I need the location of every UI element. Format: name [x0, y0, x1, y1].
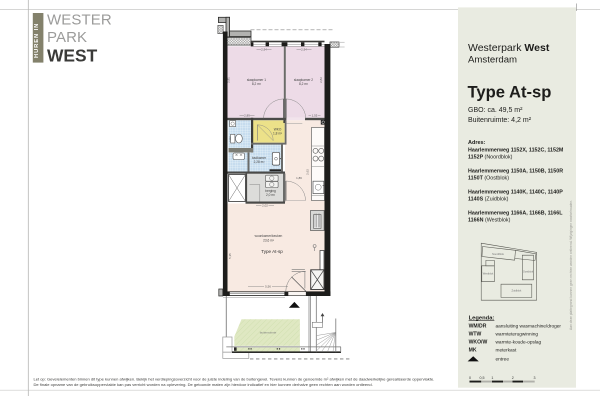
svg-text:buitenruimte: buitenruimte — [260, 331, 277, 335]
svg-text:1150T (Oostblok): 1150T (Oostblok) — [468, 176, 509, 182]
svg-text:PARK: PARK — [47, 29, 87, 46]
svg-text:0,5: 0,5 — [480, 376, 485, 380]
svg-text:2,0 m²: 2,0 m² — [266, 193, 275, 197]
svg-text:2,94: 2,94 — [301, 47, 307, 51]
svg-text:Haarlemmerweg 1152X, 1152C, 11: Haarlemmerweg 1152X, 1152C, 1152M — [468, 148, 564, 154]
svg-text:Aan deze plattegrond kunnen ge: Aan deze plattegrond kunnen geen rechten… — [569, 200, 573, 330]
svg-text:aansluiting wasmachine/droger: aansluiting wasmachine/droger — [496, 324, 562, 330]
svg-text:Zuidblok: Zuidblok — [511, 289, 522, 293]
svg-text:Type At-sp: Type At-sp — [261, 249, 283, 254]
svg-text:WM/DR: WM/DR — [469, 324, 487, 330]
svg-text:1,8 m²: 1,8 m² — [273, 132, 282, 136]
svg-text:Buitenruimte: 4,2 m²: Buitenruimte: 4,2 m² — [468, 117, 532, 124]
svg-text:HUREN IN: HUREN IN — [34, 23, 40, 58]
svg-text:1: 1 — [491, 376, 493, 380]
svg-text:2,81: 2,81 — [227, 77, 231, 83]
svg-text:2,82: 2,82 — [319, 77, 323, 83]
svg-text:Amsterdam: Amsterdam — [468, 54, 517, 65]
svg-text:5,35: 5,35 — [228, 253, 232, 259]
svg-text:Adres:: Adres: — [468, 140, 486, 146]
svg-text:woonkamer/keuken: woonkamer/keuken — [255, 234, 283, 238]
svg-text:1166N (Westblok): 1166N (Westblok) — [468, 218, 511, 224]
svg-text:meterkast: meterkast — [496, 348, 518, 354]
svg-text:1,86: 1,86 — [296, 176, 302, 180]
svg-text:GBO: ca. 49,5 m²: GBO: ca. 49,5 m² — [468, 107, 523, 114]
svg-text:2,62: 2,62 — [306, 169, 310, 175]
svg-text:1,55: 1,55 — [312, 114, 318, 118]
svg-text:0: 0 — [469, 376, 471, 380]
svg-text:Westerpark West: Westerpark West — [468, 42, 550, 54]
svg-text:warmte-koude-opslag: warmte-koude-opslag — [496, 340, 542, 346]
svg-text:23,6 m²: 23,6 m² — [263, 238, 274, 242]
svg-text:Haarlemmerweg 1140K, 1140C, 11: Haarlemmerweg 1140K, 1140C, 1140P — [468, 190, 563, 196]
svg-text:1152P (Noordblok): 1152P (Noordblok) — [468, 155, 513, 161]
svg-text:2,28 m²: 2,28 m² — [254, 160, 265, 164]
svg-text:2,89: 2,89 — [244, 114, 250, 118]
svg-text:3: 3 — [534, 376, 536, 380]
svg-text:Haarlemmerweg 1150A, 1150B, 11: Haarlemmerweg 1150A, 1150B, 1150R — [468, 169, 563, 175]
svg-text:MK: MK — [469, 348, 477, 354]
svg-text:entree: entree — [496, 357, 510, 363]
svg-text:Westblok: Westblok — [483, 272, 494, 276]
svg-text:warmteterugwinning: warmteterugwinning — [496, 332, 539, 338]
svg-text:Type At-sp: Type At-sp — [468, 83, 552, 102]
svg-text:5,56: 5,56 — [265, 285, 271, 289]
svg-text:Haarlemmerweg 1166A, 1166B, 11: Haarlemmerweg 1166A, 1166B, 1166L — [468, 211, 563, 217]
svg-text:Noordblok: Noordblok — [492, 252, 505, 256]
svg-text:1140S (Zuidblok): 1140S (Zuidblok) — [468, 197, 509, 203]
svg-text:8,2 m²: 8,2 m² — [252, 82, 261, 86]
svg-text:WKO/W: WKO/W — [469, 340, 488, 346]
svg-text:De finale opname van de gebrui: De finale opname van de gebruiksoppervla… — [34, 382, 373, 387]
svg-text:WESTER: WESTER — [47, 11, 112, 28]
svg-text:2: 2 — [512, 376, 514, 380]
svg-text:8,2 m²: 8,2 m² — [299, 82, 308, 86]
svg-text:2,94: 2,94 — [261, 47, 267, 51]
svg-text:WEST: WEST — [47, 46, 98, 66]
svg-text:WTW: WTW — [469, 332, 482, 338]
svg-text:Oostblok: Oostblok — [523, 270, 534, 274]
svg-text:Legenda:: Legenda: — [469, 315, 495, 321]
svg-text:2,02: 2,02 — [262, 204, 268, 208]
